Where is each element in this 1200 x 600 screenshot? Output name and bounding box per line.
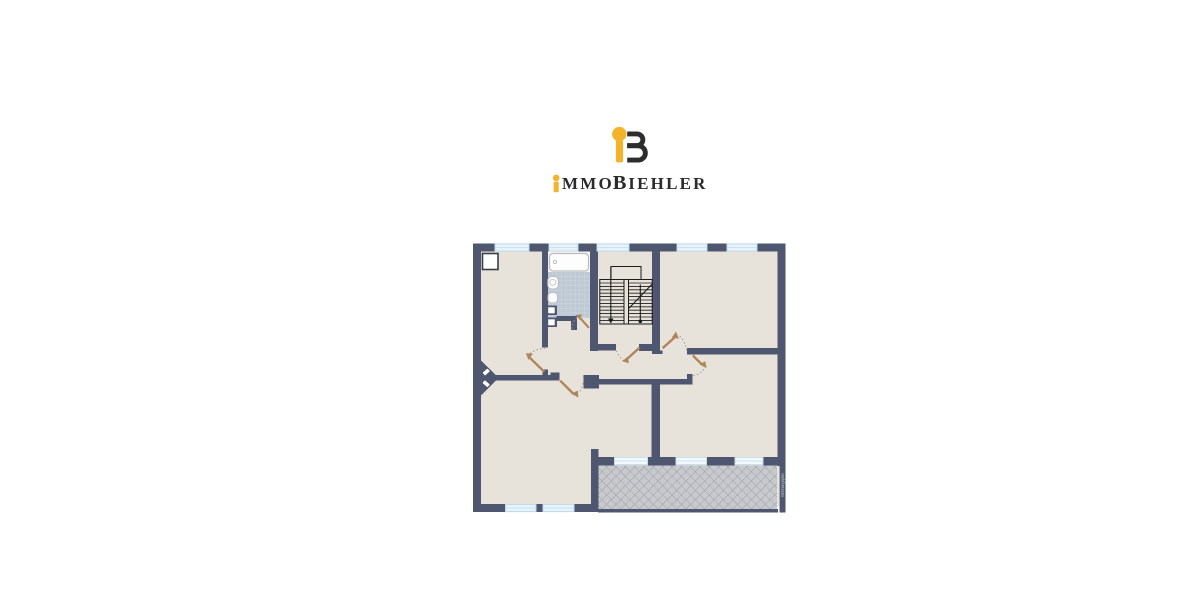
- svg-text:IEHLER: IEHLER: [628, 174, 707, 193]
- svg-text:B: B: [613, 172, 627, 194]
- svg-text:MMO: MMO: [562, 174, 614, 193]
- svg-text:Wohnungsplan: Wohnungsplan: [780, 472, 785, 497]
